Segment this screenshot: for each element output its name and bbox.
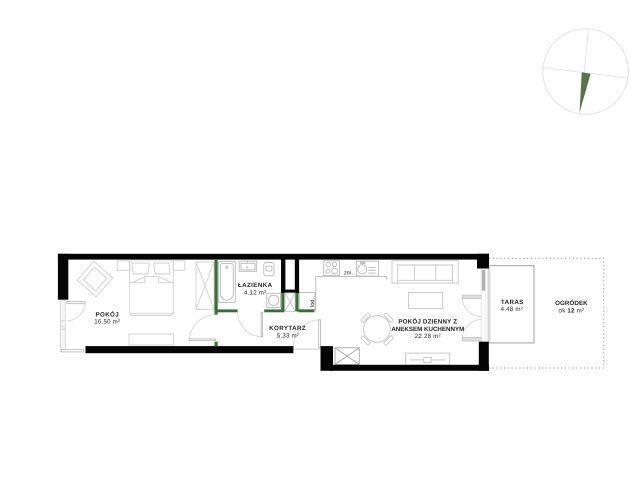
svg-text:ŁAZIENKA: ŁAZIENKA: [238, 282, 273, 289]
svg-text:22.28 m²: 22.28 m²: [415, 333, 441, 340]
svg-text:16.50 m²: 16.50 m²: [94, 319, 120, 326]
svg-text:TARAS: TARAS: [501, 299, 524, 306]
svg-text:POKÓJ: POKÓJ: [95, 310, 119, 318]
svg-text:5.33 m²: 5.33 m²: [277, 333, 299, 340]
svg-text:ok 12 m²: ok 12 m²: [559, 307, 585, 314]
svg-text:lod.: lod.: [310, 298, 316, 307]
svg-text:OGRÓDEK: OGRÓDEK: [555, 299, 588, 307]
svg-text:KORYTARZ: KORYTARZ: [269, 325, 306, 332]
svg-text:4.48 m²: 4.48 m²: [501, 306, 523, 313]
svg-text:4.12 m²: 4.12 m²: [244, 289, 266, 296]
svg-text:zm.: zm.: [344, 271, 353, 277]
svg-text:POKÓJ DZIENNY Z: POKÓJ DZIENNY Z: [398, 318, 457, 326]
svg-text:ANEKSEM KUCHENNYM: ANEKSEM KUCHENNYM: [391, 326, 464, 333]
